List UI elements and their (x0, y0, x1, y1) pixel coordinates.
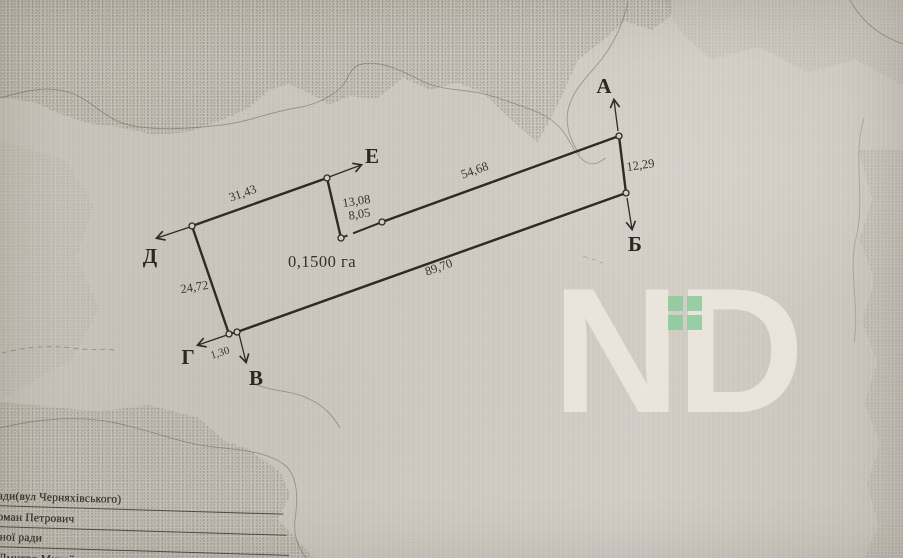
dimension-label-8-05: 8,05 (347, 205, 371, 222)
vertex-marker (379, 219, 385, 225)
arrow-to-a (614, 100, 618, 131)
parcel-drawing: 31,43 13,08 8,05 54,68 12,29 89,70 1,30 … (0, 0, 903, 558)
parcel-area-label: 0,1500 га (288, 252, 356, 271)
scanned-land-plan-page: N D (0, 0, 903, 558)
vertex-label-a: А (596, 74, 612, 98)
footer-line-text: я Дмитро Михайлович (0, 551, 105, 558)
footer-line-text: Роман Петрович (0, 510, 74, 524)
arrow-to-g (198, 335, 227, 345)
vertex-label-b: Б (628, 232, 642, 256)
vertex-marker (324, 175, 330, 181)
side-e-p1 (327, 178, 341, 238)
parcel-boundary (192, 136, 626, 334)
footer-line-text: щної ради (0, 531, 42, 545)
dimension-label-1-30: 1,30 (209, 344, 231, 361)
footer-line-text: ради(вул Черняхівського) (0, 490, 121, 506)
vertex-label-e: Е (365, 144, 379, 168)
dimension-label-89-70: 89,70 (423, 256, 454, 279)
vertex-marker (189, 223, 195, 229)
vertex-marker (616, 133, 622, 139)
vertex-label-g: Г (181, 345, 194, 369)
dimension-label-31-43: 31,43 (227, 182, 258, 205)
dimension-label-54-68: 54,68 (459, 159, 490, 182)
side-a-b (619, 136, 626, 193)
vertex-marker (623, 190, 629, 196)
footer-signature-lines: ради(вул Черняхівського) Роман Петрович … (0, 486, 312, 558)
arrow-to-b (627, 198, 632, 229)
vertex-marker (338, 235, 344, 241)
arrow-to-d (157, 227, 190, 238)
dimension-label-12-29: 12,29 (626, 156, 656, 174)
side-p1-p2 (341, 222, 382, 238)
vertex-label-v: В (249, 366, 263, 390)
dimension-label-24-72: 24,72 (179, 278, 209, 296)
vertex-markers (189, 133, 629, 337)
arrow-to-e (329, 165, 361, 177)
vertex-label-d: Д (143, 244, 158, 268)
arrow-to-v (239, 334, 246, 362)
vertex-marker (226, 331, 232, 337)
vertex-marker (234, 329, 240, 335)
side-d-e (192, 178, 327, 226)
